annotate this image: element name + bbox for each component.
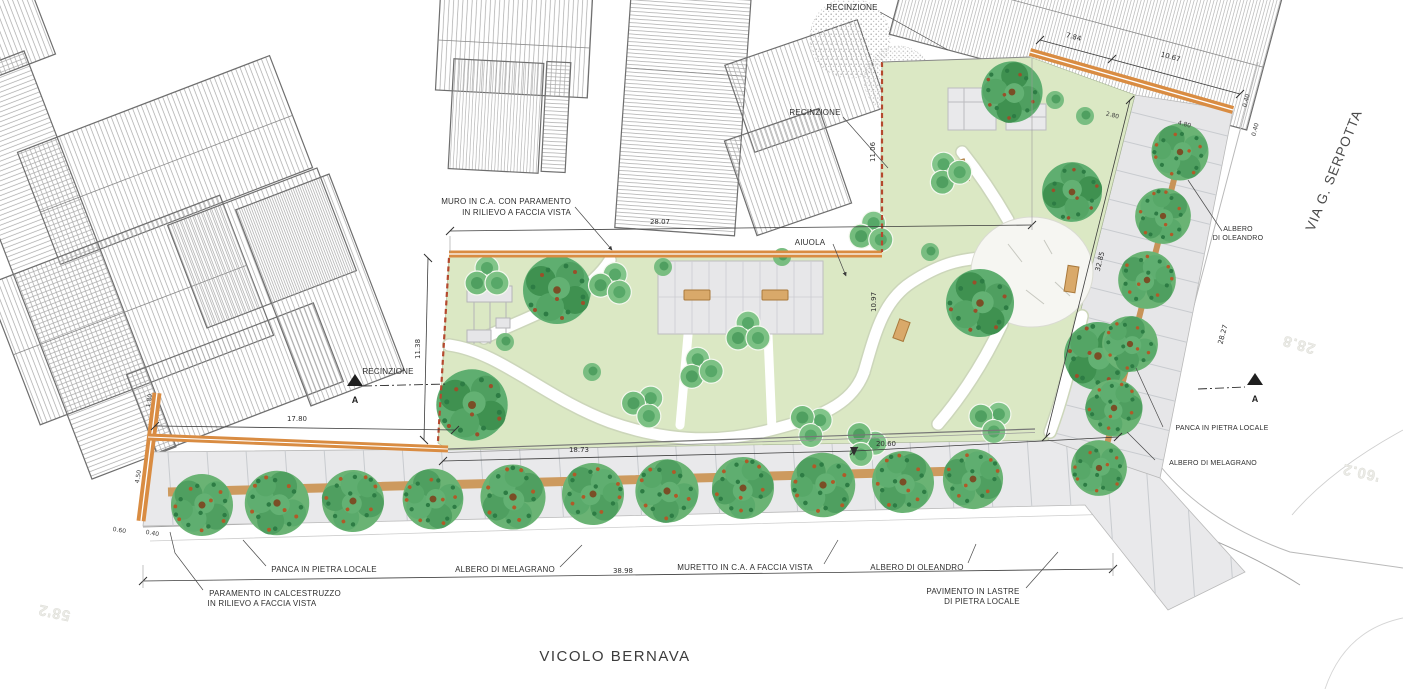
dimension-label: 28.07 bbox=[650, 218, 670, 226]
street-name-vicolo-bernava: VICOLO BERNAVA bbox=[539, 648, 690, 665]
bench bbox=[684, 290, 710, 300]
leader-line bbox=[575, 207, 612, 250]
section-letter: A bbox=[352, 395, 359, 405]
label-muro-1: MURO IN C.A. CON PARAMENTO bbox=[441, 197, 571, 206]
bench bbox=[762, 290, 788, 300]
dimension-label: 38.98 bbox=[613, 567, 633, 575]
label-pavimento-1: PAVIMENTO IN LASTRE bbox=[926, 587, 1019, 596]
dimension-label: 0.40 bbox=[145, 529, 160, 538]
cadastral-number: '60.2 bbox=[1341, 460, 1381, 484]
building-roof bbox=[448, 59, 544, 174]
tree-icon bbox=[523, 256, 591, 324]
bush-icon bbox=[1076, 107, 1094, 125]
label-muro-2: IN RILIEVO A FACCIA VISTA bbox=[462, 208, 571, 217]
site-plan-drawing: 28.07 17.80 11.38 11.06 10.97 18.73 20.6… bbox=[0, 0, 1403, 689]
label-albero-oleandro-right-1: ALBERO bbox=[1223, 226, 1253, 233]
label-panca-bottom: PANCA IN PIETRA LOCALE bbox=[271, 565, 377, 574]
dimension-label: 17.80 bbox=[287, 415, 307, 423]
street-name-via-serpotta: VIA G. SERPOTTA bbox=[1303, 107, 1365, 233]
bush-icon bbox=[1046, 91, 1064, 109]
leader-line bbox=[824, 540, 838, 564]
building-roof bbox=[724, 108, 851, 235]
building-roof bbox=[541, 61, 571, 172]
dimension-label: 11.38 bbox=[414, 339, 422, 359]
label-paramento-1: PARAMENTO IN CALCESTRUZZO bbox=[209, 589, 341, 598]
leader-line bbox=[968, 544, 976, 563]
dimension-label: 0.60 bbox=[112, 526, 127, 535]
dimension-label: 0.40 bbox=[1251, 122, 1261, 137]
leader-line bbox=[170, 532, 203, 590]
parcel-line bbox=[1325, 618, 1403, 689]
leader-line bbox=[243, 540, 266, 566]
plan-canvas: 28.07 17.80 11.38 11.06 10.97 18.73 20.6… bbox=[0, 0, 1403, 689]
dimension-label: 28.27 bbox=[1217, 324, 1230, 345]
section-arrow-icon bbox=[1247, 373, 1263, 385]
label-pavimento-2: DI PIETRA LOCALE bbox=[944, 597, 1020, 606]
dimension-label: 10.97 bbox=[870, 292, 878, 312]
leader-line bbox=[560, 545, 582, 567]
label-muretto: MURETTO IN C.A. A FACCIA VISTA bbox=[677, 563, 813, 572]
dimension-label: 20.60 bbox=[876, 440, 896, 448]
label-panca-right: PANCA IN PIETRA LOCALE bbox=[1176, 425, 1269, 432]
dimension-label: 11.06 bbox=[869, 141, 877, 162]
label-paramento-2: IN RILIEVO A FACCIA VISTA bbox=[208, 599, 317, 608]
cadastral-number: 58'2 bbox=[36, 601, 71, 624]
label-recinzione-3: RECINZIONE bbox=[362, 367, 413, 376]
label-melagrano-bottom: ALBERO DI MELAGRANO bbox=[455, 565, 555, 574]
bush-icon bbox=[496, 333, 514, 351]
label-melagrano-right: ALBERO DI MELAGRANO bbox=[1169, 460, 1257, 467]
building-roof bbox=[615, 0, 751, 236]
label-albero-oleandro-right-2: DI OLEANDRO bbox=[1213, 235, 1264, 242]
bush-icon bbox=[654, 258, 672, 276]
label-recinzione-2: RECINZIONE bbox=[789, 108, 840, 117]
label-aiuola: AIUOLA bbox=[795, 238, 826, 247]
cadastral-number: 28.8 bbox=[1280, 332, 1317, 357]
label-recinzione-1: RECINZIONE bbox=[826, 3, 877, 12]
dimension-label: 18.73 bbox=[569, 446, 589, 454]
section-marker-right: A bbox=[1198, 373, 1263, 404]
bush-icon bbox=[583, 363, 601, 381]
section-letter: A bbox=[1252, 394, 1259, 404]
label-oleandro-bottom: ALBERO DI OLEANDRO bbox=[870, 563, 963, 572]
bush-icon bbox=[921, 243, 939, 261]
